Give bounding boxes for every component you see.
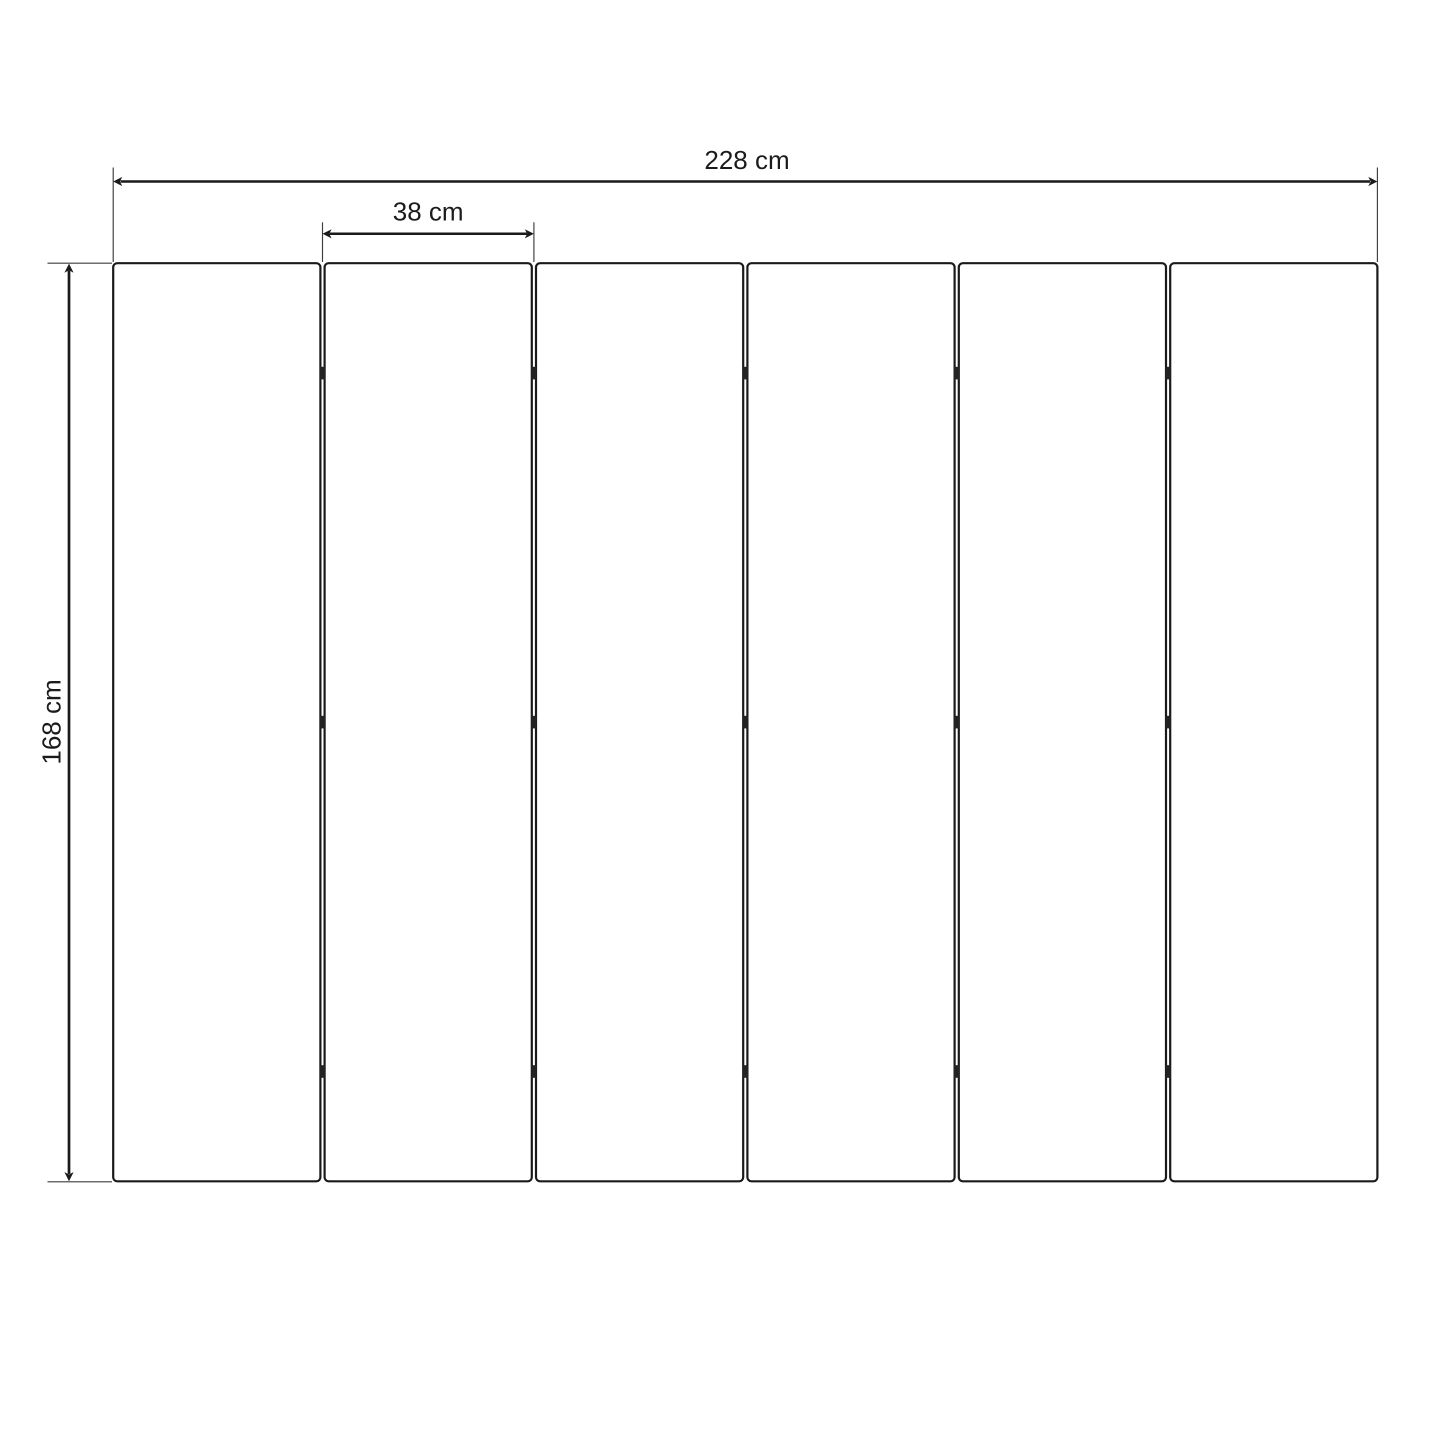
svg-text:168 cm: 168 cm bbox=[36, 679, 66, 764]
svg-text:38 cm: 38 cm bbox=[393, 197, 464, 227]
svg-text:228 cm: 228 cm bbox=[704, 145, 789, 175]
